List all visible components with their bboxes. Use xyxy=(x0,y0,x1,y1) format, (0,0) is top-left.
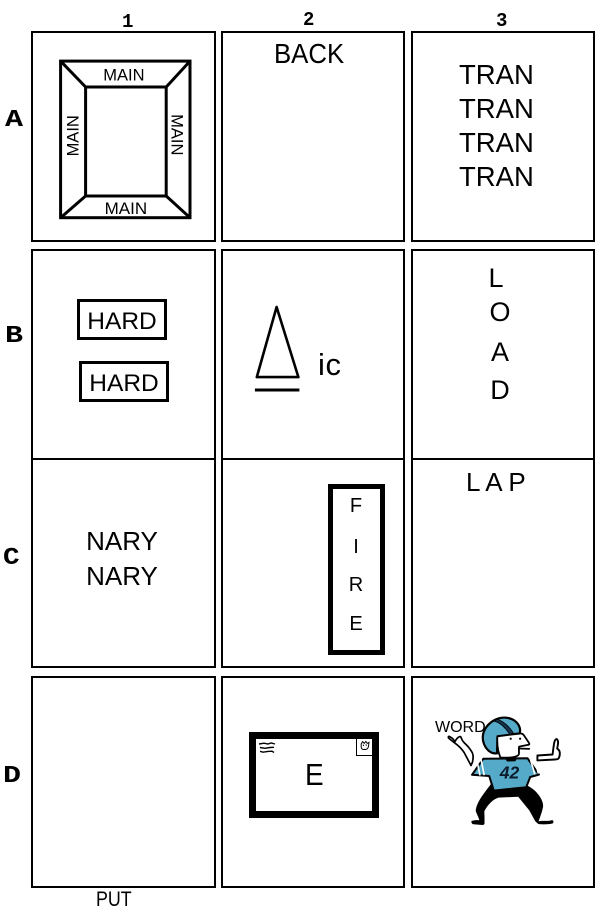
svg-text:MAIN: MAIN xyxy=(105,199,148,218)
svg-text:MAIN: MAIN xyxy=(64,115,82,156)
svg-text:MAIN: MAIN xyxy=(103,67,144,85)
svg-text:42: 42 xyxy=(499,762,520,782)
svg-text:MAIN: MAIN xyxy=(168,114,186,155)
